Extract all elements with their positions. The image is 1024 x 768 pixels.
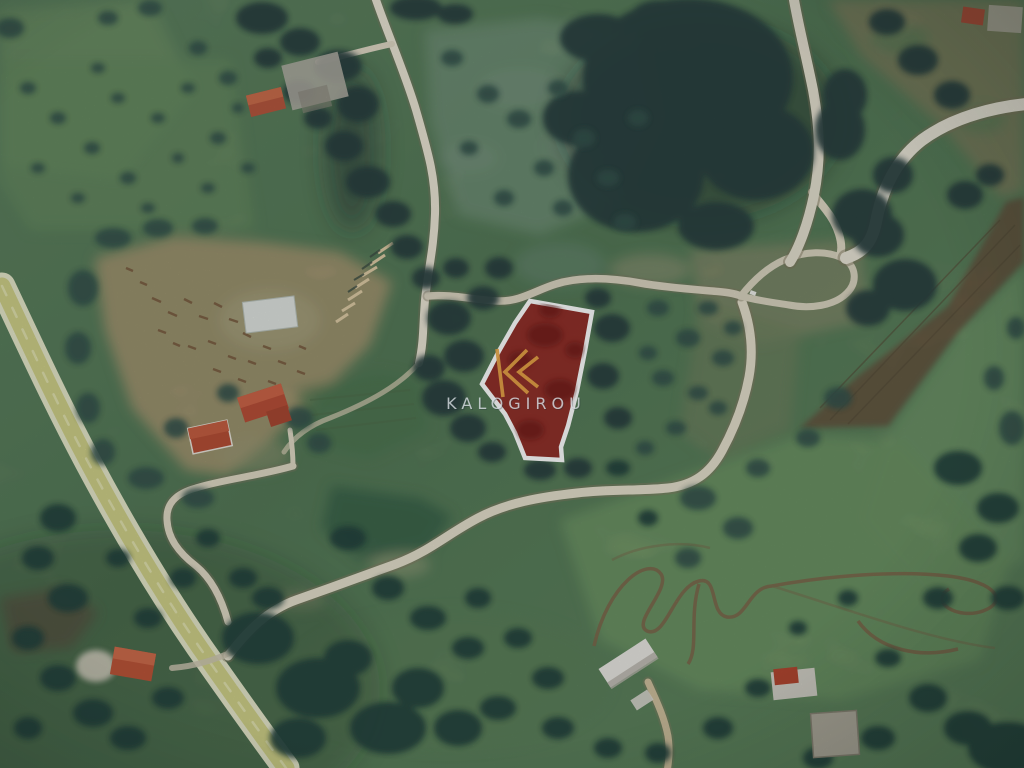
brand-name: KALOGIROU <box>446 394 586 413</box>
satellite-map: KALOGIROU KALOGIROU <box>0 0 1024 768</box>
satellite-imagery: KALOGIROU KALOGIROU <box>0 0 1024 768</box>
vignette <box>0 0 1024 768</box>
